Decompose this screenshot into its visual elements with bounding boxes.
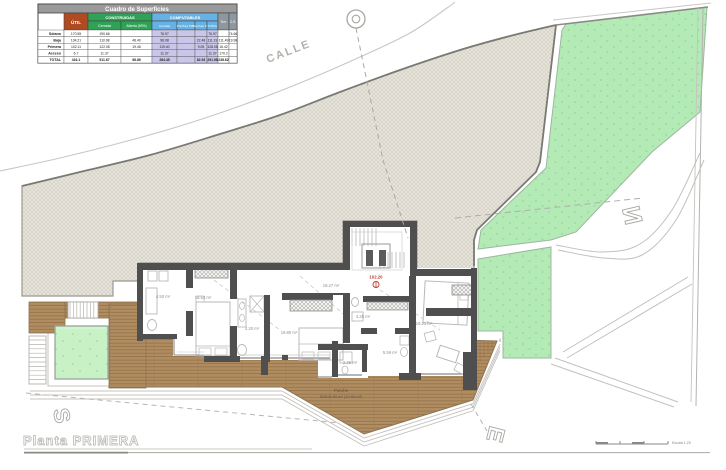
- svg-text:CONSTRUIDAS: CONSTRUIDAS: [105, 15, 135, 20]
- svg-text:ÚTIL: ÚTIL: [71, 19, 81, 25]
- svg-text:134.21: 134.21: [71, 38, 81, 42]
- svg-text:C.S.: C.S.: [230, 20, 236, 24]
- svg-text:Planta PRIMERA: Planta PRIMERA: [23, 433, 140, 448]
- svg-text:Sótano: Sótano: [49, 32, 62, 36]
- svg-text:4.20 m²: 4.20 m²: [245, 326, 260, 331]
- svg-text:19.80 m²: 19.80 m²: [281, 330, 298, 335]
- svg-text:102.11: 102.11: [71, 45, 81, 49]
- svg-text:Terr.: Terr.: [220, 20, 226, 24]
- svg-text:74.66: 74.66: [229, 32, 238, 36]
- svg-text:4.25 m²: 4.25 m²: [356, 314, 371, 319]
- svg-text:110.98: 110.98: [99, 38, 109, 42]
- svg-text:Cerrada: Cerrada: [98, 24, 111, 28]
- svg-text:76.97: 76.97: [160, 32, 169, 36]
- svg-text:170.55: 170.55: [71, 32, 81, 36]
- svg-text:111.19: 111.19: [208, 38, 218, 42]
- svg-text:416.1: 416.1: [72, 58, 81, 62]
- svg-text:2.35 m²: 2.35 m²: [343, 360, 358, 365]
- svg-text:11.37: 11.37: [208, 52, 216, 56]
- svg-text:291.98: 291.98: [207, 58, 217, 62]
- svg-text:4.50 m²: 4.50 m²: [156, 294, 171, 299]
- svg-text:TOTAL: TOTAL: [208, 24, 218, 28]
- svg-text:Cerrada: Cerrada: [159, 24, 170, 28]
- svg-text:S05+8.90 m² (19.90 m²): S05+8.90 m² (19.90 m²): [320, 394, 363, 399]
- svg-text:111.49: 111.49: [219, 38, 229, 42]
- svg-text:Acceso: Acceso: [48, 52, 62, 56]
- svg-text:Primera: Primera: [48, 45, 62, 49]
- svg-text:82.93: 82.93: [197, 58, 206, 62]
- svg-text:11.37: 11.37: [100, 52, 108, 56]
- svg-text:Cuadro de Superficies: Cuadro de Superficies: [105, 7, 169, 13]
- svg-text:190.66: 190.66: [99, 32, 109, 36]
- svg-text:16.42: 16.42: [219, 45, 228, 49]
- svg-text:18.53 m²: 18.53 m²: [195, 295, 212, 300]
- svg-text:TOTAL: TOTAL: [49, 58, 61, 62]
- svg-text:511.67: 511.67: [99, 58, 109, 62]
- svg-text:22.48: 22.48: [197, 38, 206, 42]
- svg-text:98.86: 98.86: [132, 58, 141, 62]
- svg-text:19.46: 19.46: [132, 45, 141, 49]
- svg-text:119.40: 119.40: [159, 45, 169, 49]
- svg-text:170.2: 170.2: [219, 52, 228, 56]
- svg-text:102.20: 102.20: [369, 275, 383, 280]
- svg-text:6.7: 6.7: [74, 52, 79, 56]
- svg-text:Abierta (50%): Abierta (50%): [126, 24, 146, 28]
- svg-text:98.08: 98.08: [160, 38, 169, 42]
- svg-text:Baja: Baja: [53, 38, 62, 42]
- svg-text:19.21 m²: 19.21 m²: [416, 321, 433, 326]
- svg-text:122.08: 122.08: [99, 45, 109, 49]
- svg-text:5.59 m²: 5.59 m²: [383, 350, 398, 355]
- svg-text:18.27 m²: 18.27 m²: [323, 283, 340, 288]
- svg-text:COMPUTABLES: COMPUTABLES: [170, 15, 201, 20]
- svg-text:128.08: 128.08: [207, 45, 217, 49]
- svg-text:Escala 1:25: Escala 1:25: [672, 441, 691, 445]
- svg-text:11.37: 11.37: [160, 52, 168, 56]
- svg-text:Porche: Porche: [334, 388, 349, 393]
- svg-text:264.45: 264.45: [159, 58, 169, 62]
- svg-text:238.62: 238.62: [218, 58, 228, 62]
- svg-text:19.98: 19.98: [229, 38, 238, 42]
- svg-text:48.40: 48.40: [132, 38, 141, 42]
- svg-text:9.05: 9.05: [198, 45, 205, 49]
- svg-text:76.97: 76.97: [208, 32, 217, 36]
